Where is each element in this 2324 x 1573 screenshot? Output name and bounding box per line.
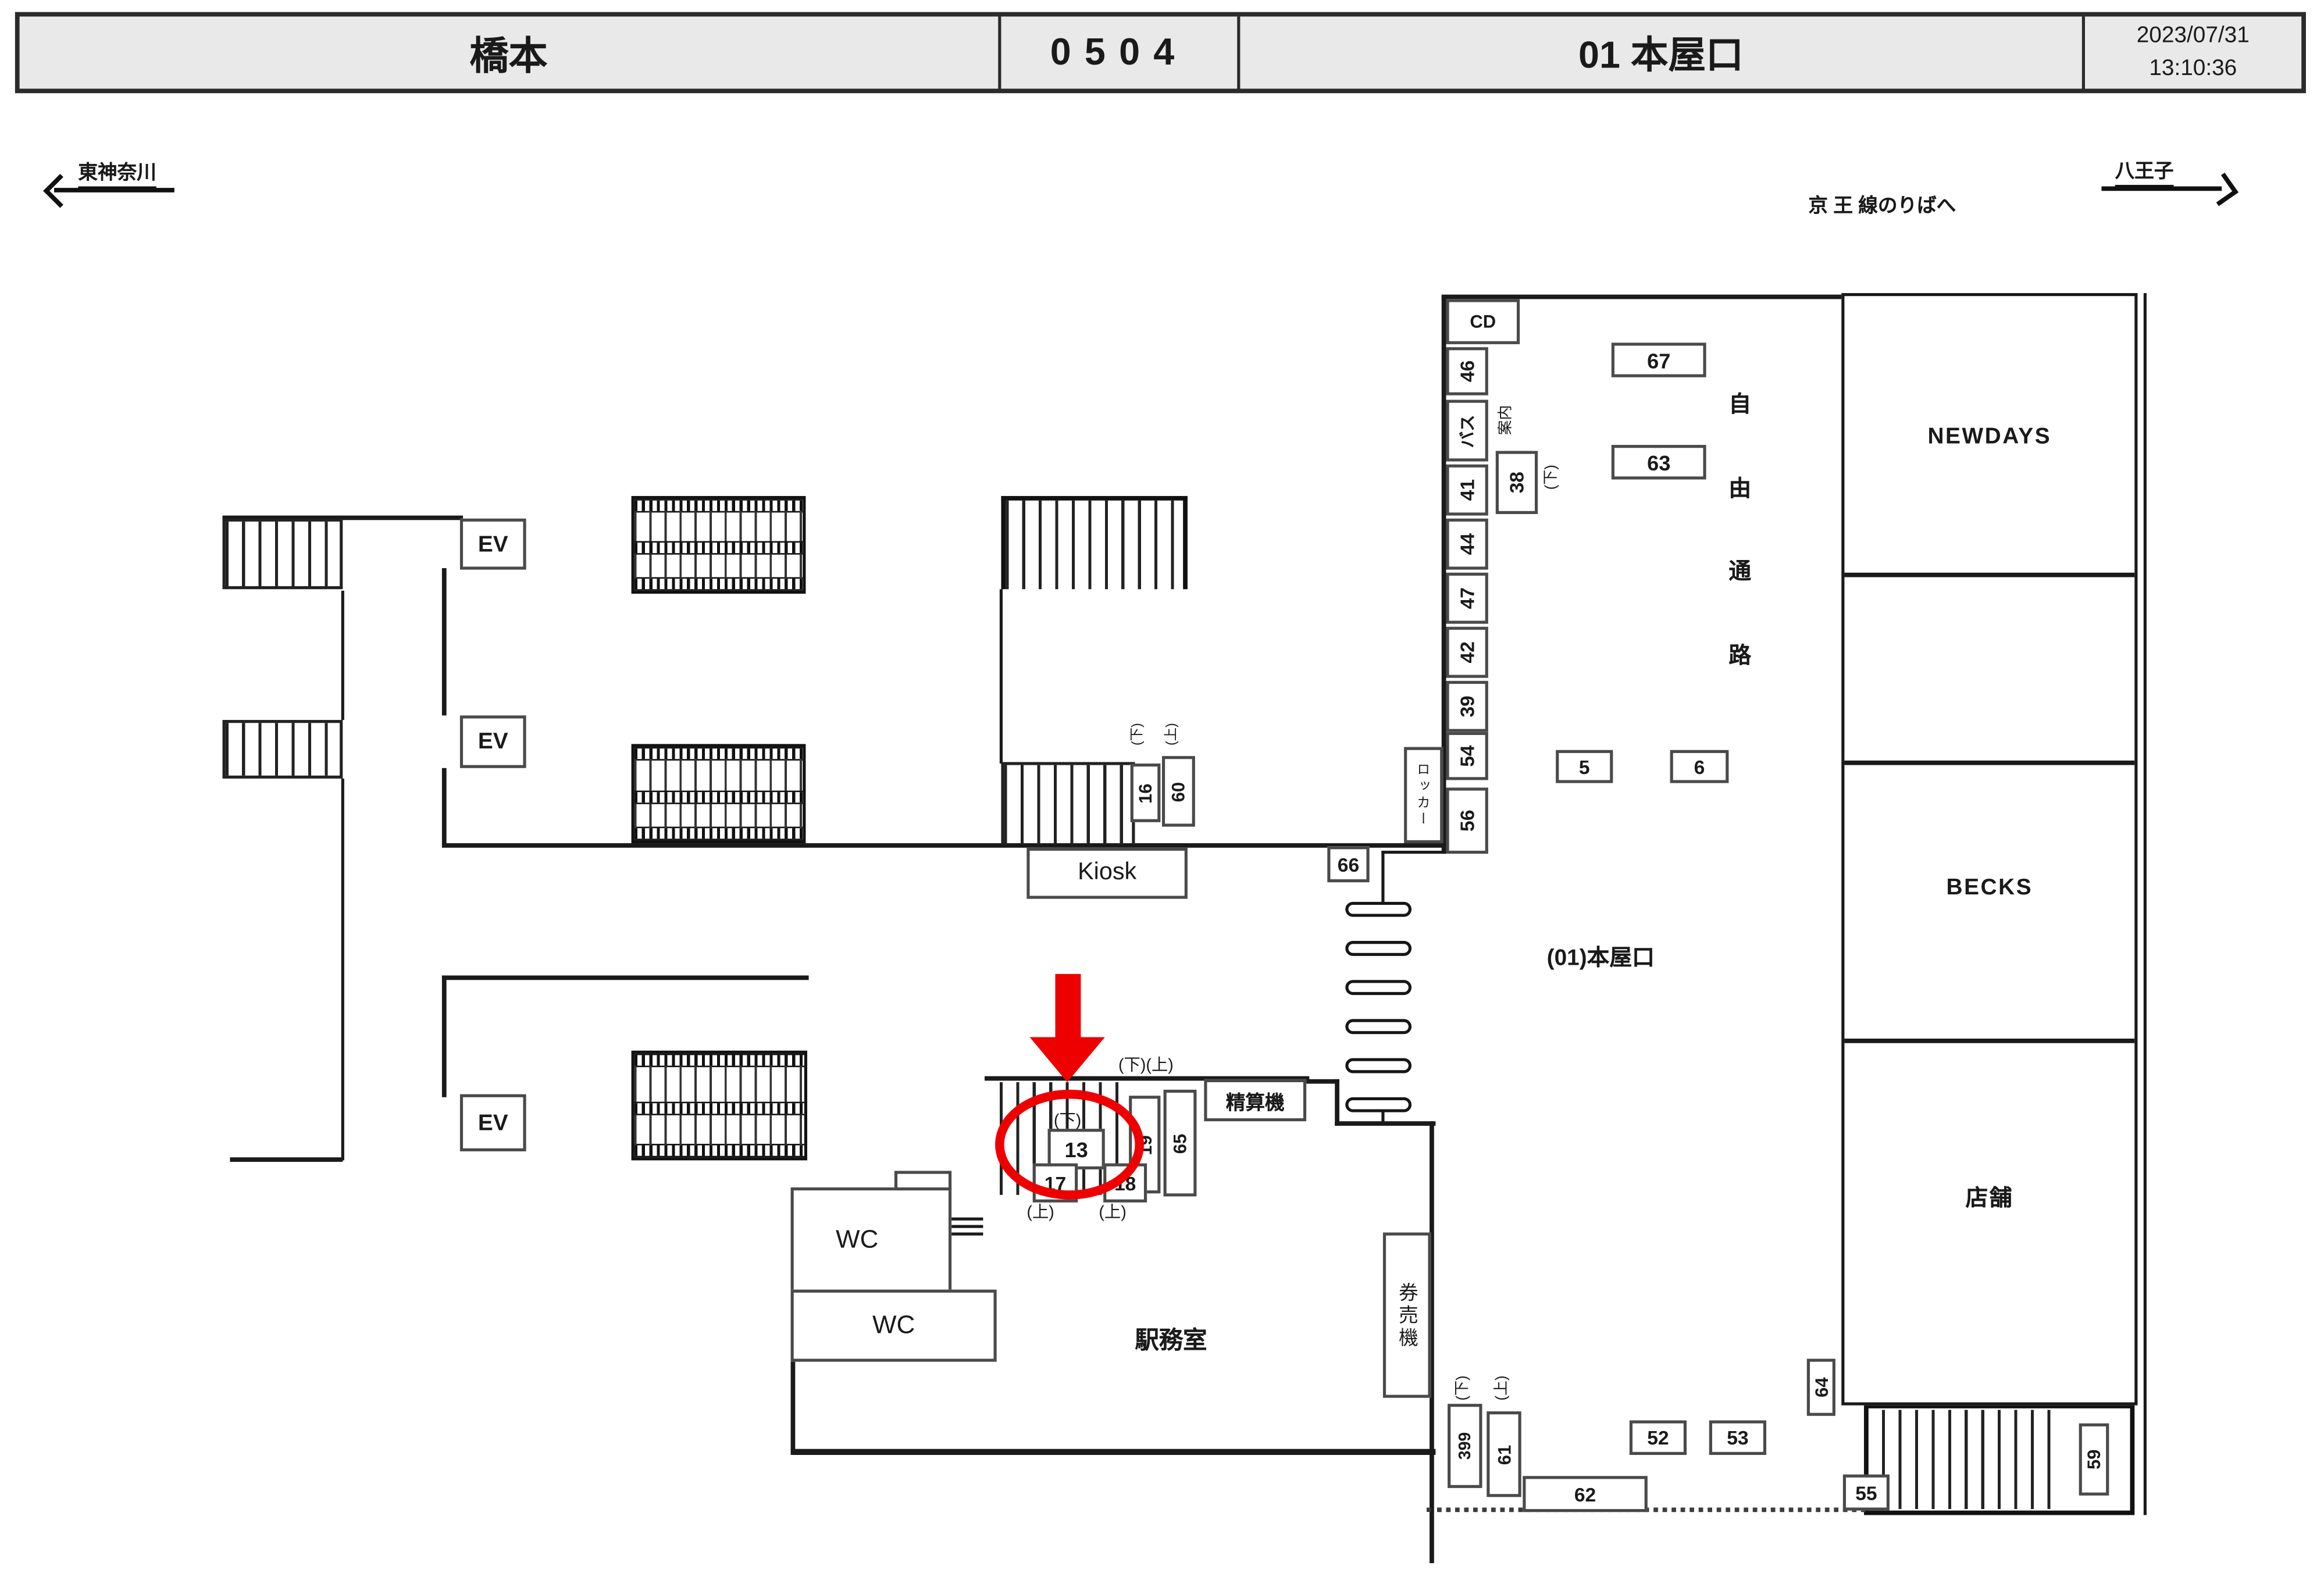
wall <box>341 591 344 720</box>
wall <box>951 1225 983 1228</box>
wall <box>341 779 344 1161</box>
map-label-gate-name: (01)本屋口 <box>1547 941 1655 972</box>
map-box-label-ev-3: EV <box>478 1110 508 1136</box>
map-box-wc-upper: WC <box>791 1187 952 1293</box>
wall <box>442 568 447 715</box>
stairs-stairs-top-left <box>223 519 343 589</box>
map-label-jiyu-1: 自 <box>1728 388 1751 419</box>
shop-divider <box>1844 573 2134 576</box>
map-box-label-cd: CD <box>1470 311 1496 332</box>
escalator-escalator-lower <box>632 1051 807 1161</box>
wall <box>230 1157 343 1162</box>
escalator-part <box>635 1101 804 1115</box>
map-box-seisanki: 精算機 <box>1204 1079 1306 1121</box>
escalator-part <box>635 577 803 591</box>
stairs-stairs-kiosk <box>1001 762 1135 844</box>
escalator-part <box>635 555 803 579</box>
map-box-ev-3: EV <box>460 1094 526 1151</box>
escalator-part <box>635 541 803 555</box>
wall <box>1335 1121 1435 1126</box>
escalator-part <box>635 759 803 790</box>
floor-plan: EVEVEVCD46バス4138444742395456676356661660… <box>0 0 2324 1572</box>
map-box-label-66: 66 <box>1338 853 1359 876</box>
map-box-61: 61 <box>1487 1411 1521 1497</box>
wall <box>1442 295 1845 299</box>
wall <box>1381 851 1446 854</box>
escalator-part <box>635 511 803 541</box>
map-label-shita-16: (下) <box>1126 723 1146 746</box>
map-box-label-44: 44 <box>1456 533 1478 555</box>
wall <box>1000 589 1003 764</box>
ticket-gate-bar-5 <box>1345 1058 1411 1073</box>
map-box-label-56: 56 <box>1456 810 1478 832</box>
map-box-label-64: 64 <box>1810 1377 1831 1397</box>
map-box-label-59: 59 <box>2083 1449 2104 1469</box>
map-box-ev-2: EV <box>460 715 526 768</box>
ticket-gate-bar-4 <box>1345 1019 1411 1034</box>
map-box-label-seisanki: 精算機 <box>1226 1086 1285 1114</box>
map-box-55: 55 <box>1843 1475 1890 1511</box>
map-box-44: 44 <box>1446 519 1488 570</box>
map-box-wc-step <box>894 1171 951 1190</box>
wall <box>951 1218 983 1221</box>
map-box-41: 41 <box>1446 465 1488 516</box>
wall <box>951 1232 983 1235</box>
map-box-kiosk: Kiosk <box>1026 848 1188 899</box>
map-box-label-60: 60 <box>1168 782 1189 802</box>
map-box-label-41: 41 <box>1456 479 1478 501</box>
wall <box>791 1449 1436 1455</box>
stairs-stairs-bottom-right-treads <box>1882 1410 2062 1509</box>
map-label-shita-ue-1965: (下)(上) <box>1118 1052 1174 1076</box>
map-box-label-wc-lower: WC <box>872 1311 915 1341</box>
map-box-label-ev-1: EV <box>478 532 508 557</box>
map-box-label-67: 67 <box>1647 348 1670 372</box>
station-map-screen: 橋本 0504 01 本屋口 2023/07/31 13:10:36 東神奈川 … <box>0 0 2324 1572</box>
map-box-65: 65 <box>1164 1090 1197 1197</box>
ticket-gate-bar-2 <box>1345 941 1411 956</box>
wall <box>442 975 447 1097</box>
shop-label-becks: BECKS <box>1844 875 2134 900</box>
escalator-escalator-mid <box>632 744 806 843</box>
map-box-label-5: 5 <box>1579 755 1590 778</box>
map-box-label-62: 62 <box>1574 1483 1596 1506</box>
map-label-jiyu-2: 由 <box>1728 472 1751 504</box>
map-label-office: 駅務室 <box>1135 1319 1207 1356</box>
red-arrow-head <box>1030 1037 1105 1082</box>
map-box-46: 46 <box>1446 347 1488 395</box>
stairs-stairs-center-upper <box>1001 496 1188 589</box>
map-box-label-42: 42 <box>1456 641 1478 663</box>
ticket-gate-bar-3 <box>1345 980 1411 995</box>
map-box-label-kiosk: Kiosk <box>1078 859 1136 887</box>
map-box-label-47: 47 <box>1456 587 1478 609</box>
map-box-64: 64 <box>1807 1359 1835 1416</box>
map-label-ue-18: (上) <box>1099 1200 1126 1224</box>
map-box-ev-1: EV <box>460 519 526 570</box>
map-box-label-39: 39 <box>1456 695 1478 717</box>
map-box-label-55: 55 <box>1855 1481 1877 1504</box>
map-box-label-65: 65 <box>1170 1133 1190 1153</box>
escalator-part <box>635 1066 804 1101</box>
map-box-39: 39 <box>1446 681 1488 732</box>
map-box-16: 16 <box>1131 764 1161 822</box>
map-box-59: 59 <box>2079 1424 2109 1496</box>
wall <box>442 768 447 845</box>
map-box-label-54: 54 <box>1456 745 1478 766</box>
ticket-gate-bar-6 <box>1345 1097 1411 1112</box>
red-arrow-shaft <box>1055 974 1081 1040</box>
map-box-66: 66 <box>1327 846 1369 882</box>
map-box-bus: バス <box>1446 400 1488 462</box>
stairs-stairs-mid-left <box>223 720 343 779</box>
map-label-ue-60: (上) <box>1160 723 1180 746</box>
ticket-gate-bar-1 <box>1345 902 1411 917</box>
map-box-label-399: 399 <box>1456 1432 1474 1460</box>
shop-divider <box>1844 761 2134 764</box>
map-box-63: 63 <box>1612 445 1706 479</box>
wall <box>1335 1079 1339 1126</box>
escalator-escalator-upper <box>632 496 806 594</box>
map-box-label-bus: バス <box>1455 414 1479 447</box>
map-box-67: 67 <box>1612 343 1706 377</box>
map-box-6: 6 <box>1670 750 1729 783</box>
escalator-part <box>635 827 803 840</box>
map-box-label-locker: ロッカー <box>1414 762 1434 828</box>
map-box-label-16: 16 <box>1135 783 1156 803</box>
escalator-part <box>635 1144 804 1157</box>
map-label-annai: 案内 <box>1492 405 1514 436</box>
map-box-62: 62 <box>1523 1476 1648 1512</box>
map-box-47: 47 <box>1446 573 1488 624</box>
map-label-shita-399: (下) <box>1449 1375 1471 1400</box>
map-box-label-53: 53 <box>1727 1426 1748 1449</box>
map-box-label-52: 52 <box>1647 1426 1669 1449</box>
map-box-label-kenbaiki: 券売機 <box>1393 1281 1421 1349</box>
escalator-part <box>635 804 803 829</box>
map-box-5: 5 <box>1556 750 1613 783</box>
map-box-54: 54 <box>1446 732 1488 780</box>
map-box-label-wc-upper: WC <box>836 1225 878 1255</box>
map-box-label-6: 6 <box>1694 755 1705 778</box>
map-box-399: 399 <box>1448 1404 1482 1488</box>
map-box-60: 60 <box>1162 756 1195 826</box>
escalator-part <box>635 790 803 803</box>
map-box-label-ev-2: EV <box>478 729 508 755</box>
shop-column: NEWDAYSBECKS店舗 <box>1841 293 2137 1406</box>
wall <box>442 843 1446 848</box>
map-box-label-63: 63 <box>1647 450 1670 474</box>
map-label-jiyu-4: 路 <box>1728 639 1751 670</box>
shop-divider <box>1844 1039 2134 1042</box>
map-label-ue-17: (上) <box>1026 1200 1054 1224</box>
map-box-label-46: 46 <box>1456 361 1478 382</box>
red-highlight-circle <box>995 1090 1144 1200</box>
wall <box>442 975 809 980</box>
map-box-kenbaiki: 券売機 <box>1383 1232 1431 1397</box>
shop-label-tenpo: 店舗 <box>1844 1182 2134 1213</box>
wall <box>791 1360 796 1452</box>
map-box-52: 52 <box>1630 1421 1687 1455</box>
escalator-part <box>635 1115 804 1145</box>
map-box-38: 38 <box>1496 451 1538 514</box>
map-label-jiyu-3: 通 <box>1728 555 1751 586</box>
map-box-locker: ロッカー <box>1404 747 1443 843</box>
map-box-42: 42 <box>1446 627 1488 678</box>
map-box-wc-lower: WC <box>791 1290 997 1362</box>
map-box-label-38: 38 <box>1506 472 1528 493</box>
map-label-ue-61: (上) <box>1488 1375 1510 1400</box>
map-box-label-61: 61 <box>1494 1444 1514 1464</box>
map-label-shita-38: (下) <box>1538 465 1560 490</box>
map-box-53: 53 <box>1709 1421 1766 1455</box>
wall <box>2144 293 2147 1515</box>
map-box-56: 56 <box>1446 787 1488 854</box>
wall <box>1381 851 1384 905</box>
shop-label-newdays: NEWDAYS <box>1844 424 2134 450</box>
map-box-cd: CD <box>1446 299 1520 344</box>
